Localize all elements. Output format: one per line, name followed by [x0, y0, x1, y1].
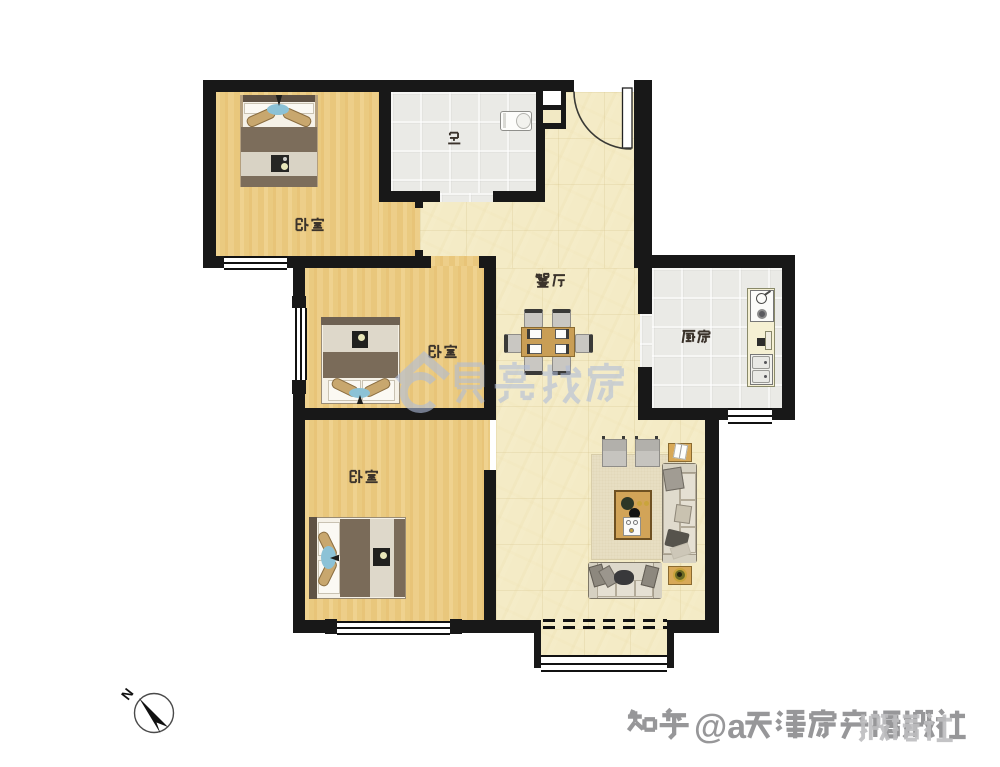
svg-text:N: N: [118, 685, 137, 703]
svg-text:@a: @a: [694, 708, 747, 746]
